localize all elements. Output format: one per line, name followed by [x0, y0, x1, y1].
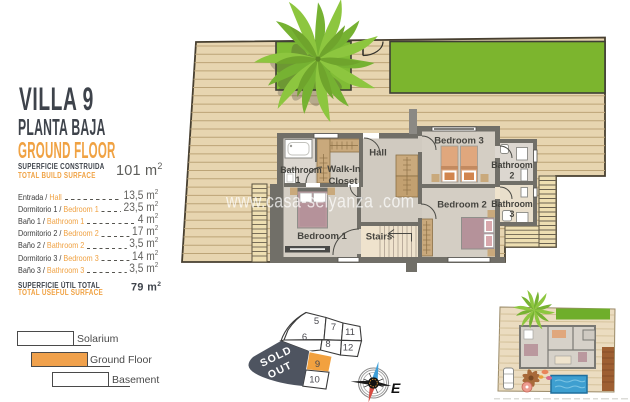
svg-text:www.casa-selyanza .com: www.casa-selyanza .com [225, 190, 414, 212]
svg-text:Bedroom 3: Bedroom 3 [434, 136, 484, 147]
svg-text:9: 9 [315, 359, 320, 370]
svg-text:5: 5 [314, 316, 319, 327]
svg-text:1: 1 [296, 175, 301, 185]
svg-text:Bathroom: Bathroom [280, 165, 322, 175]
svg-text:10: 10 [309, 375, 320, 386]
svg-text:E: E [391, 380, 401, 396]
svg-text:3: 3 [510, 209, 515, 219]
svg-text:11: 11 [345, 327, 355, 338]
svg-text:Bathroom: Bathroom [491, 199, 533, 209]
svg-text:Bedroom 2: Bedroom 2 [437, 200, 487, 211]
svg-text:Bathroom: Bathroom [491, 160, 533, 170]
svg-text:12: 12 [343, 343, 354, 354]
svg-text:Hall: Hall [369, 148, 386, 159]
svg-text:Closet: Closet [328, 176, 358, 187]
svg-text:Stairs: Stairs [366, 232, 392, 243]
svg-text:7: 7 [331, 322, 336, 333]
svg-text:Walk-In: Walk-In [327, 164, 361, 175]
svg-text:8: 8 [325, 339, 330, 350]
svg-text:6: 6 [302, 332, 307, 343]
svg-text:Bedroom 1: Bedroom 1 [297, 231, 347, 242]
svg-text:2: 2 [510, 171, 515, 181]
